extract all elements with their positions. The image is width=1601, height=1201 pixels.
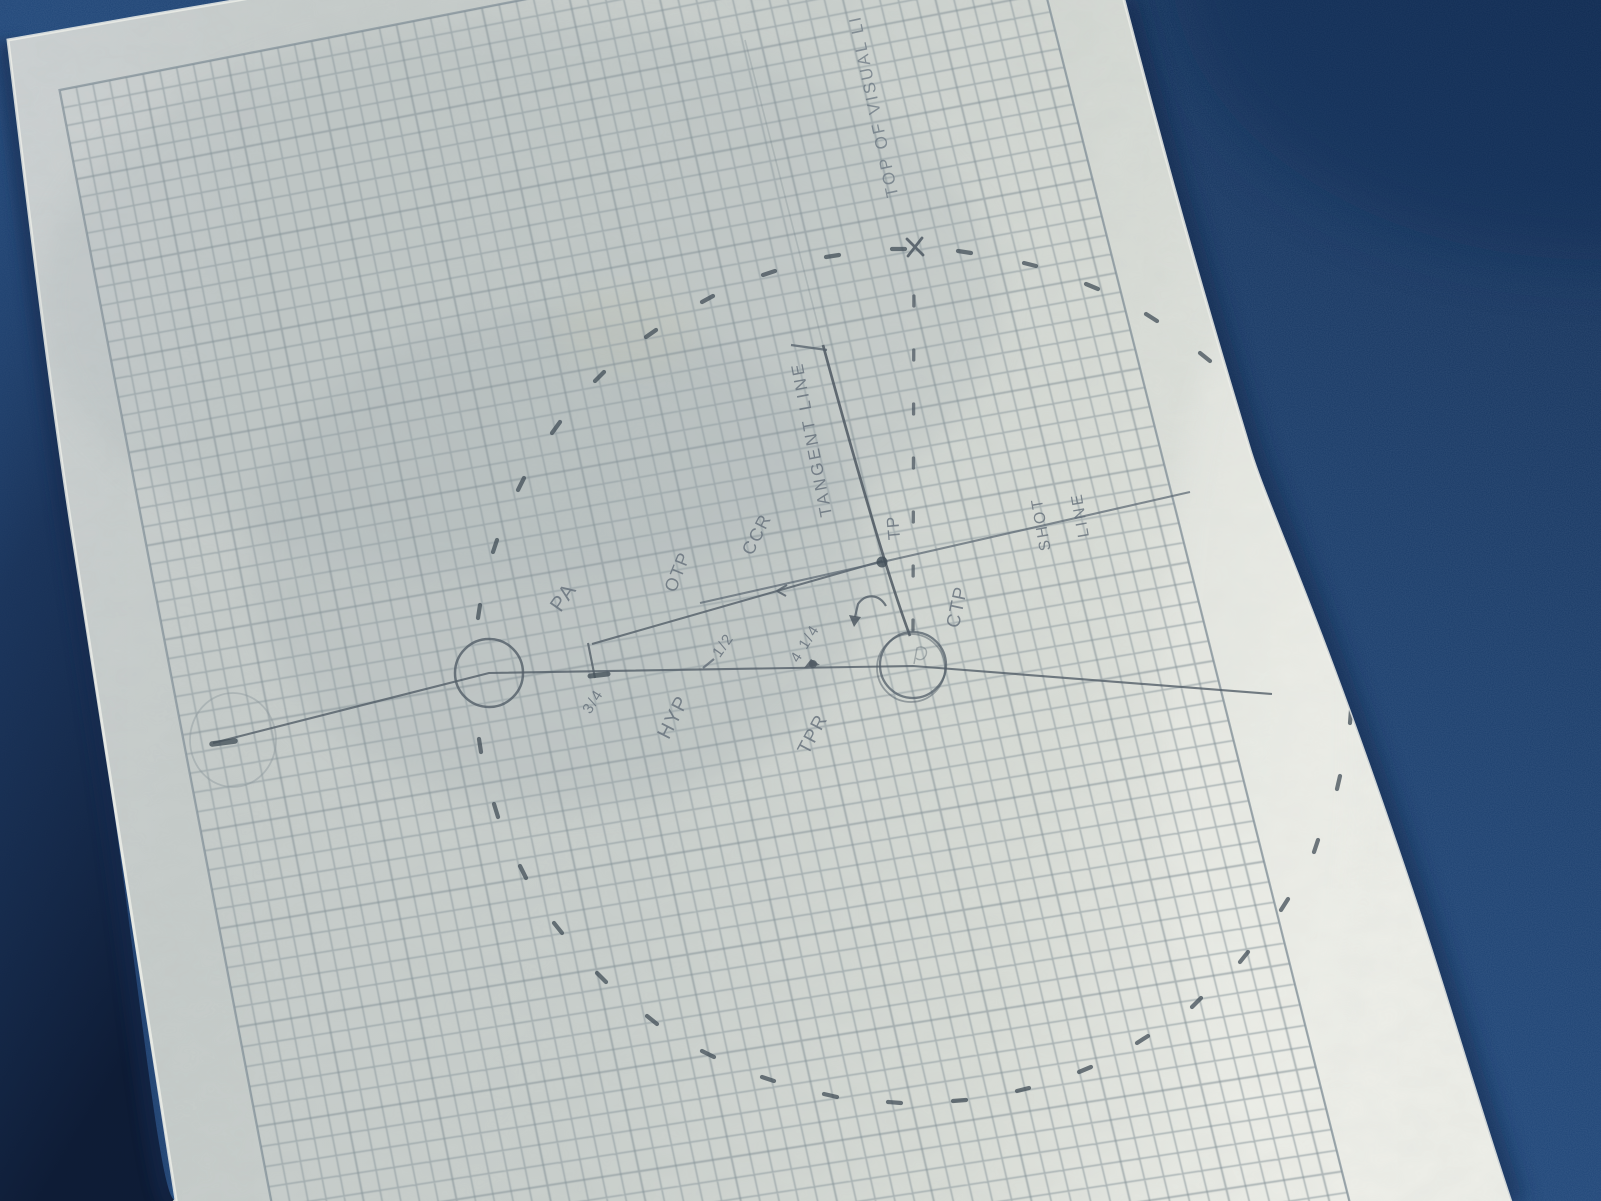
svg-text:TP: TP: [883, 514, 904, 540]
